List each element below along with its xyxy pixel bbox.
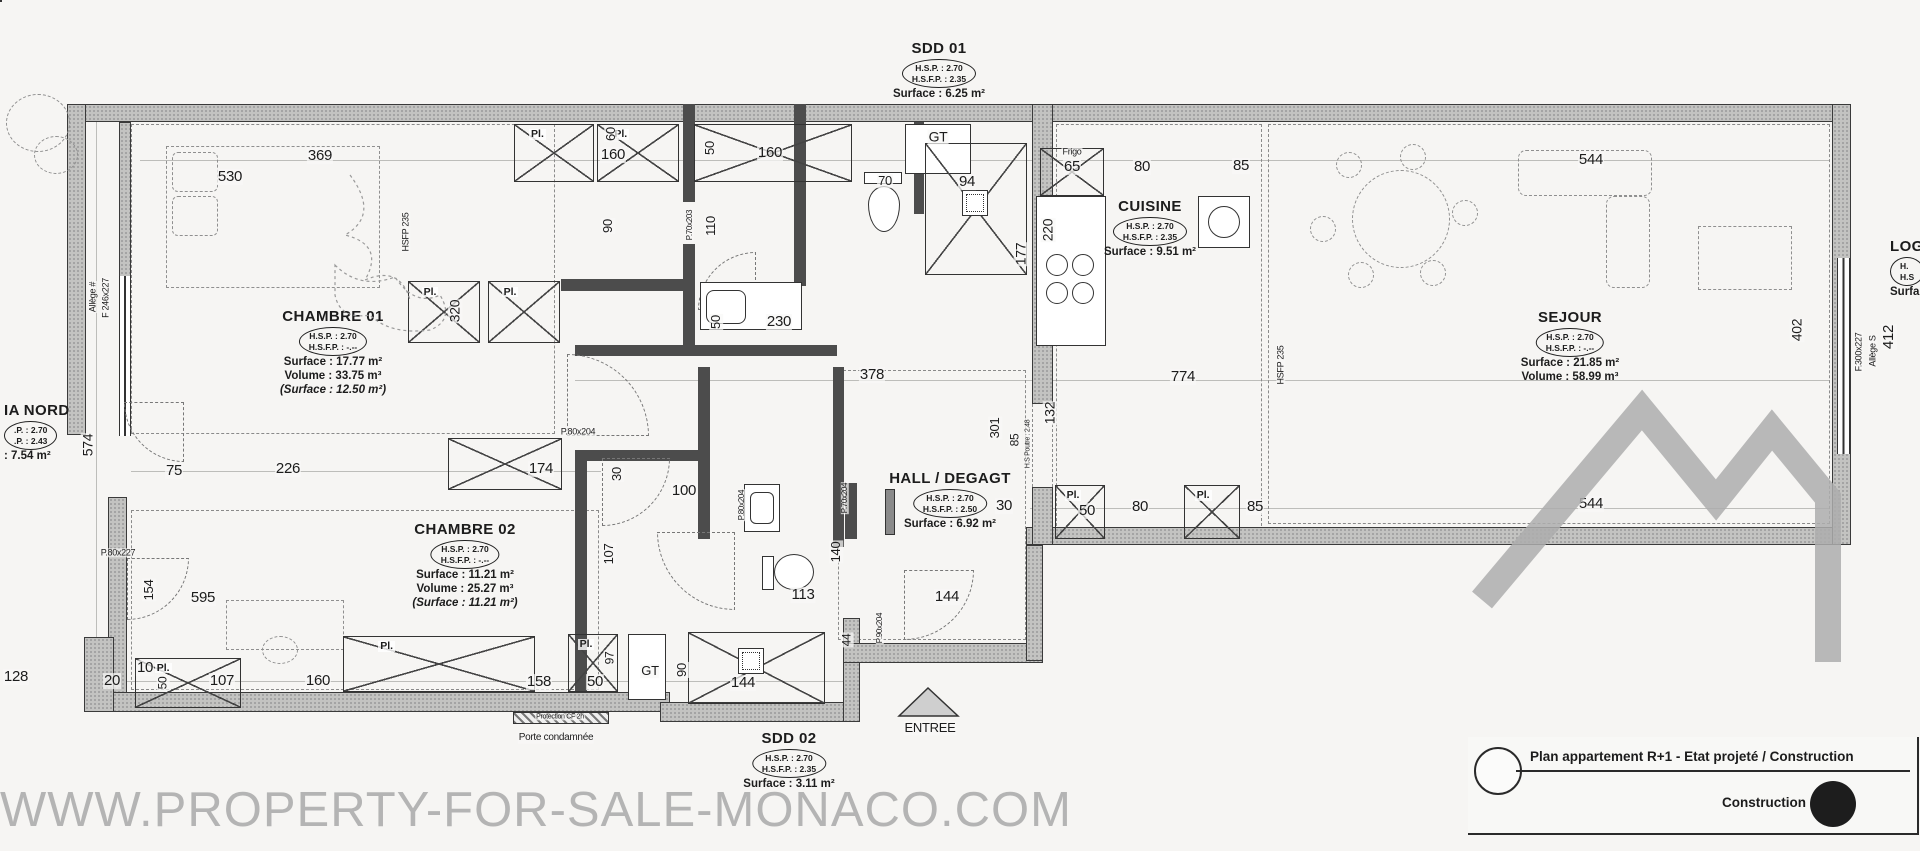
- dining-chair: [1452, 200, 1478, 226]
- room-oval2: H.S.F.P. : 2.35: [1123, 232, 1177, 243]
- door-arc-chambre01: [567, 354, 649, 436]
- room-oval1: H.S.P. : 2.70: [1546, 332, 1595, 343]
- room-line1: : 7.54 m²: [4, 450, 70, 464]
- dim-label: Frigo: [1061, 147, 1082, 156]
- dim-label: 144: [730, 675, 756, 691]
- dim-label: P.80x204: [560, 427, 596, 436]
- partition: [575, 345, 837, 356]
- dim-label: 30: [610, 466, 624, 482]
- dim-label: 530: [217, 169, 243, 185]
- legend-circle-icon: [1474, 747, 1522, 795]
- window-right-loggia: [1837, 258, 1850, 454]
- closet-box: Pl.: [343, 636, 535, 692]
- room-info-chambre01: CHAMBRE 01H.S.P. : 2.70H.S.F.P. : -.--Su…: [280, 308, 386, 398]
- dim-chain-line: [96, 122, 97, 692]
- dim-label: HSFP 235: [401, 212, 410, 253]
- dim-label: F.300x227: [1854, 332, 1863, 373]
- entree-triangle: [899, 688, 958, 716]
- wall-top: [67, 104, 1851, 122]
- dim-label: 70: [877, 174, 893, 188]
- dim-label: 113: [790, 587, 815, 603]
- toilet-tank-hall: [762, 556, 774, 590]
- dim-label: 107: [602, 543, 616, 566]
- room-line1: Surface : 9.51 m²: [1104, 246, 1196, 260]
- dim-label: 369: [307, 148, 333, 164]
- room-oval2: H.S.F.P. : 2.50: [923, 504, 977, 515]
- dim-label: 544: [1578, 496, 1604, 512]
- room-stats-oval: H.S.P. : 2.70H.S.F.P. : 2.50: [913, 489, 987, 518]
- toilet-bowl-hall: [774, 554, 814, 590]
- wall-bottom-right: [1026, 527, 1851, 545]
- dim-label: 132: [1043, 401, 1058, 425]
- dim-label: 50: [1078, 503, 1096, 519]
- construction-dot-icon: [1810, 781, 1856, 827]
- dim-label: P.90x204: [876, 612, 884, 644]
- dim-label: GT: [928, 130, 949, 145]
- dim-label: 378: [859, 367, 885, 383]
- dim-label: H.S Poutre : 2.48: [1024, 419, 1031, 470]
- dim-label: 50: [709, 314, 723, 330]
- dim-label: 50: [586, 674, 604, 690]
- room-line2: Volume : 25.27 m³: [412, 583, 517, 597]
- dim-label: 144: [934, 589, 960, 605]
- room-oval1: .P. : 2.70: [14, 425, 47, 436]
- room-info-sdd01: SDD 01H.S.P. : 2.70H.S.F.P. : 2.35Surfac…: [893, 40, 985, 102]
- room-oval1: H.S.P. : 2.70: [1123, 221, 1177, 232]
- shower-drain-sdd01: [962, 190, 988, 216]
- room-name: CUISINE: [1104, 198, 1196, 215]
- room-info-sejour: SEJOURH.S.P. : 2.70H.S.F.P. : -.--Surfac…: [1521, 309, 1619, 385]
- room-stats-oval: H.S.P. : 2.70H.S.F.P. : -.--: [431, 540, 500, 569]
- room-line1: Surface : 6.92 m²: [889, 518, 1011, 532]
- room-oval1: H.S.P. : 2.70: [912, 63, 966, 74]
- room-name: CHAMBRE 01: [280, 308, 386, 325]
- partition: [833, 367, 844, 547]
- room-stats-oval: H.S.P. : 2.70H.S.F.P. : -.--: [1536, 328, 1605, 357]
- dim-label: 174: [528, 461, 554, 477]
- dim-label: 160: [757, 145, 783, 161]
- dining-chair: [1348, 262, 1374, 288]
- dim-label: ENTREE: [904, 721, 957, 735]
- dim-label: 160: [600, 147, 626, 163]
- dim-label: 301: [988, 417, 1002, 440]
- dim-label: 574: [81, 433, 96, 457]
- closet-label: Pl.: [1065, 490, 1082, 501]
- sink-hall-basin: [750, 492, 774, 524]
- dim-label: 158: [526, 674, 552, 690]
- room-oval1: H.: [1900, 261, 1914, 272]
- site-watermark: WWW.PROPERTY-FOR-SALE-MONACO.COM: [0, 782, 1072, 838]
- closet-label: Pl.: [502, 287, 519, 298]
- dim-label: 154: [142, 579, 156, 602]
- dim-label: 97: [604, 651, 617, 666]
- closet-label: Pl.: [1195, 490, 1212, 501]
- dim-label: 110: [704, 215, 718, 237]
- room-stats-oval: H.H.S: [1890, 257, 1920, 286]
- room-oval2: .P. : 2.43: [14, 436, 47, 447]
- floor-plan: WWW.PROPERTY-FOR-SALE-MONACO.COM Plan ap…: [0, 0, 1920, 851]
- room-line1: Surface : 21.85 m²: [1521, 357, 1619, 371]
- dim-label: HSFP 235: [1276, 345, 1285, 386]
- dim-label: P.70x203: [686, 209, 694, 241]
- legend: Plan appartement R+1 - Etat projeté / Co…: [1468, 737, 1919, 835]
- kitchen-sink-bowl: [1208, 206, 1240, 238]
- room-oval2: H.S: [1900, 272, 1914, 283]
- dim-label: Allège S: [1868, 334, 1877, 367]
- dim-label: 160: [305, 673, 331, 689]
- pillow: [172, 152, 218, 192]
- shower-drain-sdd02: [738, 648, 764, 674]
- closet-label: Pl.: [378, 641, 395, 652]
- dim-label: 80: [1131, 499, 1149, 515]
- dim-label: Protection CF 2h: [535, 713, 585, 720]
- dim-label: 140: [829, 541, 843, 564]
- room-info-loggia-est: LOGH.H.SSurfa: [1890, 238, 1920, 300]
- dim-label: 412: [1881, 324, 1897, 350]
- room-info-hall: HALL / DEGAGTH.S.P. : 2.70H.S.F.P. : 2.5…: [889, 470, 1011, 532]
- dim-label: 85: [1009, 433, 1022, 448]
- dim-label: 402: [1790, 318, 1805, 342]
- room-info-chambre02: CHAMBRE 02H.S.P. : 2.70H.S.F.P. : -.--Su…: [412, 521, 517, 611]
- closet-label: Pl.: [578, 639, 595, 650]
- dim-label: P.80x227: [100, 548, 136, 557]
- room-oval2: H.S.F.P. : 2.35: [912, 74, 966, 85]
- dining-chair: [1336, 152, 1362, 178]
- plant-sketch: [34, 136, 78, 174]
- dim-label: 774: [1170, 369, 1196, 385]
- closet-box: Pl.: [488, 281, 560, 343]
- dim-label: 320: [448, 299, 463, 323]
- dim-label: 107: [209, 673, 235, 689]
- closet-label: Pl.: [155, 663, 172, 674]
- room-oval1: H.S.P. : 2.70: [762, 753, 816, 764]
- room-line2: Volume : 33.75 m³: [280, 370, 386, 384]
- room-oval2: H.S.F.P. : 2.35: [762, 764, 816, 775]
- door-arc-loggia: [124, 402, 184, 462]
- room-oval1: H.S.P. : 2.70: [441, 544, 490, 555]
- room-info-cuisine: CUISINEH.S.P. : 2.70H.S.F.P. : 2.35Surfa…: [1104, 198, 1196, 260]
- room-stats-oval: H.S.P. : 2.70H.S.F.P. : 2.35: [902, 59, 976, 88]
- closet-label: Pl.: [422, 287, 439, 298]
- wall-sdd02-bottom: [660, 702, 860, 722]
- dim-label: 230: [766, 314, 792, 330]
- dim-label: 90: [675, 662, 689, 678]
- dim-label: 90: [601, 218, 615, 234]
- dim-label: 226: [275, 461, 301, 477]
- dim-label: P.80x204: [738, 489, 746, 521]
- dim-label: 20: [103, 673, 121, 689]
- room-name: LOG: [1890, 238, 1920, 255]
- vanity-basin-2: [0, 0, 2, 2]
- closet-box: Pl.: [1184, 485, 1240, 539]
- cooktop-burner: [1072, 282, 1094, 304]
- cooktop-burner: [1072, 254, 1094, 276]
- room-info-loggia-nord: IA NORD.P. : 2.70.P. : 2.43: 7.54 m²: [4, 402, 70, 464]
- sofa-vertical: [1606, 196, 1650, 288]
- dim-label: Allège #: [88, 281, 97, 313]
- legend-construction-label: Construction: [1722, 795, 1806, 810]
- room-line1: Surface : 6.25 m²: [893, 88, 985, 102]
- wall-step2: [1026, 545, 1043, 661]
- dim-label: 128: [3, 669, 29, 685]
- room-oval2: H.S.F.P. : -.--: [309, 342, 358, 353]
- room-line3: (Surface : 11.21 m²): [412, 597, 517, 611]
- dim-label: 50: [157, 676, 170, 691]
- rug: [1698, 226, 1792, 290]
- dim-label: Porte condamnée: [518, 733, 594, 744]
- dim-label: 595: [190, 590, 216, 606]
- room-oval1: H.S.P. : 2.70: [309, 331, 358, 342]
- partition: [683, 244, 695, 345]
- dim-label: P.70x204: [841, 482, 849, 514]
- room-oval2: H.S.F.P. : -.--: [441, 555, 490, 566]
- room-line3: (Surface : 12.50 m²): [280, 384, 386, 398]
- dim-label: 65: [1063, 159, 1081, 175]
- wall-hall-bottom: [843, 643, 1043, 663]
- room-name: SEJOUR: [1521, 309, 1619, 326]
- room-stats-oval: .P. : 2.70.P. : 2.43: [4, 421, 57, 450]
- partition: [561, 279, 686, 291]
- room-stats-oval: H.S.P. : 2.70H.S.F.P. : 2.35: [752, 749, 826, 778]
- dining-chair: [1310, 216, 1336, 242]
- dim-label: GT: [640, 664, 659, 678]
- dim-label: 10: [136, 660, 154, 676]
- cooktop-burner: [1046, 254, 1068, 276]
- closet-box: Pl.: [514, 124, 594, 182]
- room-name: CHAMBRE 02: [412, 521, 517, 538]
- room-oval1: H.S.P. : 2.70: [923, 493, 977, 504]
- dining-table: [1352, 170, 1450, 268]
- cooktop-burner: [1046, 282, 1068, 304]
- room-line1: Surface : 11.21 m²: [412, 569, 517, 583]
- desk-chair: [262, 636, 298, 664]
- room-line2: Volume : 58.99 m³: [1521, 371, 1619, 385]
- dim-label: 100: [671, 483, 697, 499]
- room-name: IA NORD: [4, 402, 70, 419]
- partition: [698, 367, 710, 539]
- dim-label: 85: [1246, 499, 1264, 515]
- dim-label: 80: [1133, 159, 1151, 175]
- wall-facade-left: [119, 122, 131, 278]
- dim-label: 60: [604, 126, 618, 142]
- dim-label: 94: [958, 174, 976, 190]
- room-stats-oval: H.S.P. : 2.70H.S.F.P. : -.--: [299, 327, 368, 356]
- closet-box: Pl.: [408, 281, 480, 343]
- pillow: [172, 196, 218, 236]
- room-name: SDD 01: [893, 40, 985, 57]
- wall-cuisine-left-lower: [1032, 487, 1053, 545]
- room-name: HALL / DEGAGT: [889, 470, 1011, 487]
- dim-label: 44: [841, 633, 854, 648]
- dim-label: 544: [1578, 152, 1604, 168]
- dim-label: F 246x227: [101, 277, 110, 319]
- room-line1: Surface : 17.77 m²: [280, 356, 386, 370]
- dim-label: 220: [1041, 218, 1056, 242]
- room-oval2: H.S.F.P. : -.--: [1546, 343, 1595, 354]
- dining-chair: [1400, 144, 1426, 170]
- legend-underline: [1516, 770, 1910, 772]
- room-stats-oval: H.S.P. : 2.70H.S.F.P. : 2.35: [1113, 217, 1187, 246]
- dim-label: 177: [1014, 242, 1029, 266]
- dim-label: 75: [165, 463, 183, 479]
- toilet-bowl-top: [868, 186, 900, 232]
- door-arc-chambre02: [657, 532, 735, 610]
- legend-title: Plan appartement R+1 - Etat projeté / Co…: [1530, 749, 1910, 764]
- dim-label: 50: [703, 140, 717, 156]
- dining-chair: [1420, 260, 1446, 286]
- room-line1: Surfa: [1890, 286, 1920, 300]
- dim-label: 85: [1232, 158, 1250, 174]
- room-name: SDD 02: [743, 730, 834, 747]
- closet-label: Pl.: [529, 129, 546, 140]
